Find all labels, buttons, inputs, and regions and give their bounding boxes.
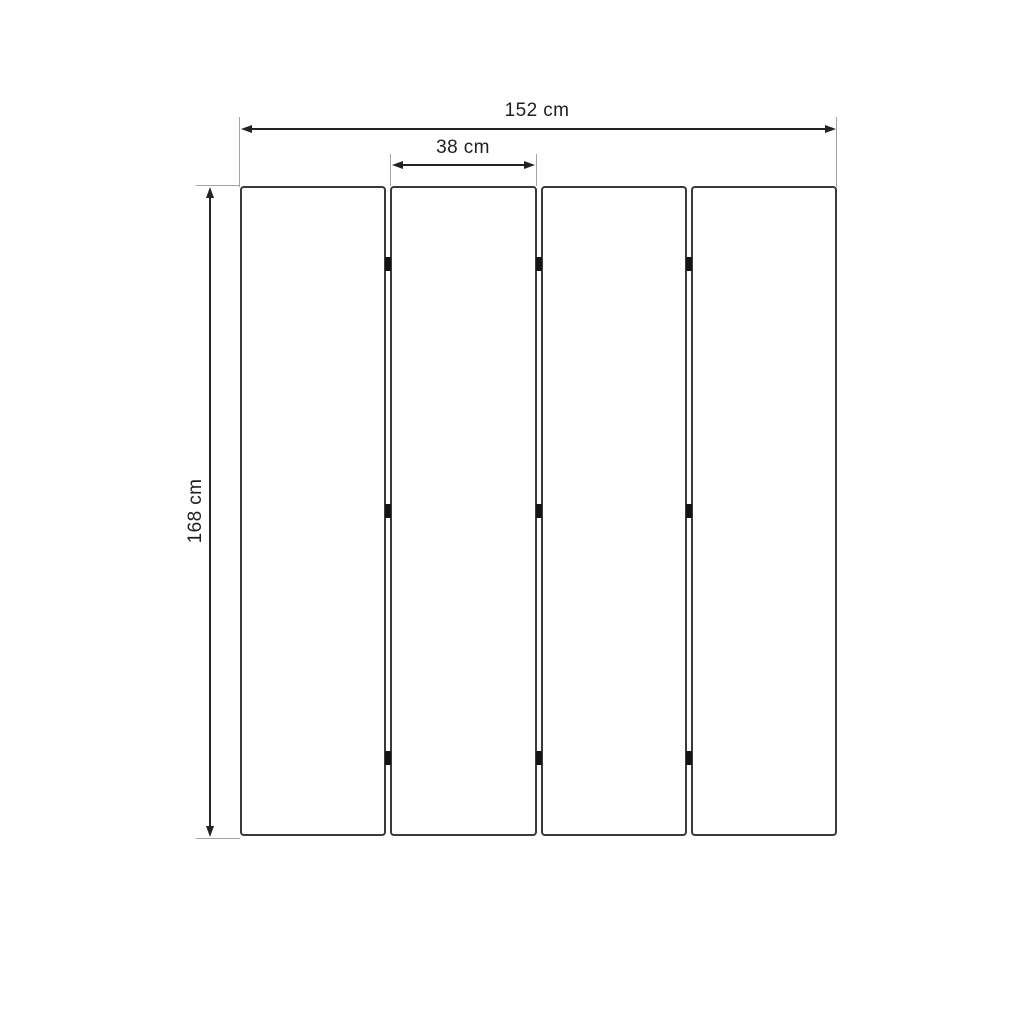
panel-4 — [691, 186, 837, 836]
arrowhead-up-icon — [206, 187, 214, 198]
total-width-label: 152 cm — [457, 100, 617, 122]
arrowhead-left-icon — [392, 161, 403, 169]
arrowhead-down-icon — [206, 826, 214, 837]
arrowhead-right-icon — [825, 125, 836, 133]
arrowhead-right-icon — [524, 161, 535, 169]
extension-line-total-width-left — [239, 117, 240, 187]
hinge — [385, 751, 391, 765]
hinge — [536, 257, 542, 271]
extension-line-panel-width-left — [390, 154, 391, 186]
panel-width-label: 38 cm — [403, 137, 523, 159]
hinge — [385, 257, 391, 271]
hinge — [686, 751, 692, 765]
extension-line-panel-width-right — [536, 154, 537, 186]
extension-line-height-top — [196, 185, 240, 186]
panel-1 — [240, 186, 386, 836]
dimension-line-height — [209, 196, 211, 828]
panel-2 — [390, 186, 536, 836]
hinge — [536, 751, 542, 765]
height-label: 168 cm — [185, 479, 207, 544]
panels-region — [240, 186, 837, 836]
hinge — [686, 257, 692, 271]
hinge — [385, 504, 391, 518]
hinge — [686, 504, 692, 518]
panel-3 — [541, 186, 687, 836]
hinge — [536, 504, 542, 518]
dimension-line-panel-width — [401, 164, 526, 166]
dimension-line-total-width — [250, 128, 827, 130]
extension-line-height-bottom — [196, 838, 240, 839]
dimension-drawing-canvas: 152 cm 38 cm 168 cm — [0, 0, 1024, 1024]
arrowhead-left-icon — [241, 125, 252, 133]
extension-line-total-width-right — [836, 117, 837, 187]
